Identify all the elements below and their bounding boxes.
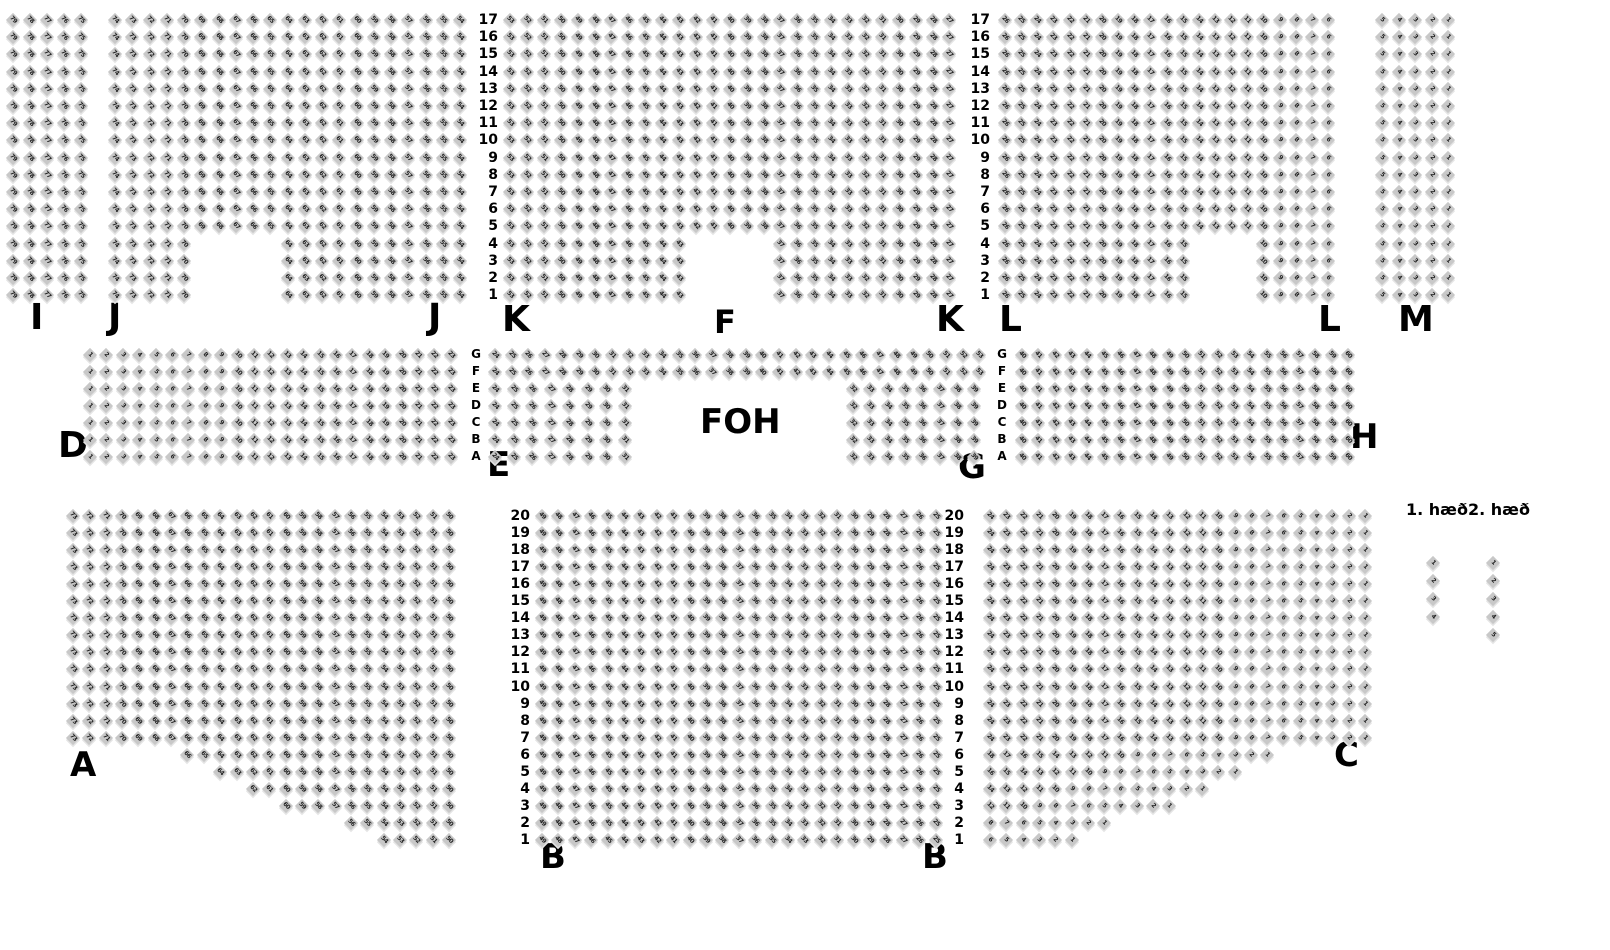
seat[interactable]: 39 [740, 99, 754, 113]
seat[interactable]: 29 [580, 416, 594, 430]
seat[interactable]: 20 [1048, 509, 1062, 523]
seat[interactable]: 20 [1095, 288, 1109, 302]
seat[interactable]: 37 [932, 433, 946, 447]
seat[interactable]: 16 [1113, 714, 1127, 728]
seat[interactable]: 24 [983, 662, 997, 676]
seat[interactable]: 25 [1014, 47, 1028, 61]
seat[interactable]: 32 [858, 202, 872, 216]
seat[interactable]: 51 [939, 348, 953, 362]
seat[interactable]: 65 [263, 82, 277, 96]
seat[interactable]: 78 [23, 82, 37, 96]
seat[interactable]: 36 [748, 509, 762, 523]
seat[interactable]: 49 [535, 628, 549, 642]
seat[interactable]: 51 [1194, 450, 1208, 464]
seat[interactable]: 42 [650, 611, 664, 625]
seat[interactable]: 2 [1244, 748, 1258, 762]
seat[interactable]: 25 [506, 416, 520, 430]
seat[interactable]: 43 [672, 65, 686, 79]
seat[interactable]: 57 [328, 577, 342, 591]
seat[interactable]: 60 [349, 30, 363, 44]
seat[interactable]: 28 [879, 628, 893, 642]
seat[interactable]: 53 [1227, 416, 1241, 430]
seat[interactable]: 60 [349, 237, 363, 251]
seat[interactable]: 55 [360, 662, 374, 676]
seat[interactable]: 69 [131, 543, 145, 557]
seat[interactable]: 77 [40, 116, 54, 130]
seat[interactable]: 31 [875, 13, 889, 27]
seat[interactable]: 29 [909, 116, 923, 130]
seat[interactable]: 2 [1486, 574, 1500, 588]
seat[interactable]: 41 [666, 662, 680, 676]
seat[interactable]: 22 [1016, 731, 1030, 745]
seat[interactable]: 77 [40, 13, 54, 27]
seat[interactable]: 15 [1130, 543, 1144, 557]
seat[interactable]: 22 [427, 382, 441, 396]
seat[interactable]: 35 [807, 271, 821, 285]
seat[interactable]: 31 [830, 543, 844, 557]
seat[interactable]: 52 [520, 168, 534, 182]
seat[interactable]: 57 [328, 662, 342, 676]
seat[interactable]: 73 [66, 526, 80, 540]
seat[interactable]: 33 [841, 168, 855, 182]
seat[interactable]: 57 [401, 237, 415, 251]
seat[interactable]: 39 [740, 202, 754, 216]
seat[interactable]: 25 [1014, 151, 1028, 165]
seat[interactable]: 35 [807, 13, 821, 27]
seat[interactable]: 8 [1289, 168, 1303, 182]
seat[interactable]: 12 [1179, 714, 1193, 728]
seat[interactable]: 26 [912, 526, 926, 540]
seat[interactable]: 2 [1342, 628, 1356, 642]
seat[interactable]: 30 [892, 168, 906, 182]
seat[interactable]: 1 [1195, 782, 1209, 796]
seat[interactable]: 55 [360, 628, 374, 642]
seat[interactable]: 49 [1162, 399, 1176, 413]
seat[interactable]: 51 [537, 13, 551, 27]
seat[interactable]: 75 [74, 30, 88, 44]
seat[interactable]: 69 [131, 560, 145, 574]
seat[interactable]: 17 [345, 365, 359, 379]
seat[interactable]: 19 [378, 365, 392, 379]
seat[interactable]: 55 [1259, 399, 1273, 413]
seat[interactable]: 1 [1441, 47, 1455, 61]
seat[interactable]: 36 [748, 833, 762, 847]
seat[interactable]: 30 [892, 13, 906, 27]
seat[interactable]: 32 [814, 714, 828, 728]
seat[interactable]: 37 [773, 185, 787, 199]
seat[interactable]: 58 [311, 799, 325, 813]
seat[interactable]: 64 [213, 696, 227, 710]
seat[interactable]: 16 [1113, 679, 1127, 693]
seat[interactable]: 5 [1375, 151, 1389, 165]
seat[interactable]: 39 [740, 185, 754, 199]
seat[interactable]: 41 [666, 679, 680, 693]
seat[interactable]: 53 [503, 82, 517, 96]
seat[interactable]: 28 [562, 416, 576, 430]
seat[interactable]: 47 [568, 816, 582, 830]
seat[interactable]: 48 [1145, 399, 1159, 413]
seat[interactable]: 16 [1159, 65, 1173, 79]
seat[interactable]: 6 [165, 433, 179, 447]
seat[interactable]: 35 [807, 99, 821, 113]
seat[interactable]: 20 [395, 433, 409, 447]
seat[interactable]: 46 [621, 288, 635, 302]
seat[interactable]: 44 [617, 816, 631, 830]
seat[interactable]: 7 [1162, 748, 1176, 762]
seat[interactable]: 58 [311, 748, 325, 762]
seat[interactable]: 2 [1048, 833, 1062, 847]
seat[interactable]: 15 [1130, 628, 1144, 642]
seat[interactable]: 32 [814, 662, 828, 676]
seat[interactable]: 73 [125, 288, 139, 302]
seat[interactable]: 37 [732, 577, 746, 591]
seat[interactable]: 4 [1391, 271, 1405, 285]
seat[interactable]: 53 [393, 526, 407, 540]
seat[interactable]: 6 [165, 382, 179, 396]
seat[interactable]: 35 [765, 731, 779, 745]
seat[interactable]: 37 [773, 168, 787, 182]
seat[interactable]: 17 [1143, 116, 1157, 130]
seat[interactable]: 54 [377, 560, 391, 574]
seat[interactable]: 41 [666, 645, 680, 659]
seat[interactable]: 46 [621, 185, 635, 199]
seat[interactable]: 64 [280, 237, 294, 251]
seat[interactable]: 66 [180, 543, 194, 557]
seat[interactable]: 71 [160, 271, 174, 285]
seat[interactable]: 28 [925, 30, 939, 44]
seat[interactable]: 57 [401, 65, 415, 79]
seat[interactable]: 18 [1127, 168, 1141, 182]
seat[interactable]: 55 [360, 543, 374, 557]
seat[interactable]: 79 [6, 65, 20, 79]
seat[interactable]: 19 [1064, 645, 1078, 659]
seat[interactable]: 40 [683, 816, 697, 830]
seat[interactable]: 60 [349, 47, 363, 61]
seat[interactable]: 15 [1130, 714, 1144, 728]
seat[interactable]: 27 [942, 30, 956, 44]
seat[interactable]: 22 [1063, 82, 1077, 96]
seat[interactable]: 61 [332, 168, 346, 182]
seat[interactable]: 5 [1375, 99, 1389, 113]
seat[interactable]: 52 [409, 782, 423, 796]
seat[interactable]: 55 [360, 731, 374, 745]
seat[interactable]: 34 [781, 799, 795, 813]
seat[interactable]: 4 [1309, 731, 1323, 745]
seat[interactable]: 49 [571, 13, 585, 27]
seat[interactable]: 15 [1176, 65, 1190, 79]
seat[interactable]: 52 [520, 185, 534, 199]
seat[interactable]: 36 [688, 365, 702, 379]
seat[interactable]: 31 [875, 99, 889, 113]
seat[interactable]: 59 [295, 696, 309, 710]
seat[interactable]: 9 [1272, 65, 1286, 79]
seat[interactable]: 49 [535, 765, 549, 779]
seat[interactable]: 11 [247, 399, 261, 413]
seat[interactable]: 13 [1162, 594, 1176, 608]
seat[interactable]: 35 [807, 237, 821, 251]
seat[interactable]: 6 [1321, 13, 1335, 27]
seat[interactable]: 9 [1272, 82, 1286, 96]
seat[interactable]: 29 [909, 254, 923, 268]
seat[interactable]: 21 [1032, 577, 1046, 591]
seat[interactable]: 57 [328, 748, 342, 762]
seat[interactable]: 53 [503, 99, 517, 113]
seat[interactable]: 20 [395, 399, 409, 413]
seat[interactable]: 37 [773, 116, 787, 130]
seat[interactable]: 21 [1079, 185, 1093, 199]
seat[interactable]: 13 [1208, 65, 1222, 79]
seat[interactable]: 43 [672, 47, 686, 61]
seat[interactable]: 51 [426, 509, 440, 523]
seat[interactable]: 42 [650, 748, 664, 762]
seat[interactable]: 72 [82, 696, 96, 710]
seat[interactable]: 40 [1015, 382, 1029, 396]
seat[interactable]: 66 [246, 168, 260, 182]
seat[interactable]: 6 [1276, 543, 1290, 557]
seat[interactable]: 18 [1127, 254, 1141, 268]
seat[interactable]: 63 [229, 526, 243, 540]
seat[interactable]: 27 [942, 65, 956, 79]
seat[interactable]: 54 [1243, 382, 1257, 396]
seat[interactable]: 57 [401, 151, 415, 165]
seat[interactable]: 10 [1256, 185, 1270, 199]
seat[interactable]: 59 [295, 543, 309, 557]
seat[interactable]: 49 [1162, 416, 1176, 430]
seat[interactable]: 2 [1424, 30, 1438, 44]
seat[interactable]: 77 [40, 185, 54, 199]
seat[interactable]: 56 [344, 662, 358, 676]
seat[interactable]: 61 [262, 782, 276, 796]
seat[interactable]: 73 [125, 116, 139, 130]
seat[interactable]: 64 [213, 714, 227, 728]
seat[interactable]: 32 [814, 748, 828, 762]
seat[interactable]: 74 [108, 82, 122, 96]
seat[interactable]: 33 [841, 219, 855, 233]
seat[interactable]: 5 [1375, 30, 1389, 44]
seat[interactable]: 72 [82, 679, 96, 693]
seat[interactable]: 73 [125, 185, 139, 199]
seat[interactable]: 51 [537, 288, 551, 302]
seat[interactable]: 10 [231, 365, 245, 379]
seat[interactable]: 21 [1079, 219, 1093, 233]
seat[interactable]: 63 [298, 82, 312, 96]
seat[interactable]: 45 [839, 365, 853, 379]
seat[interactable]: 44 [617, 731, 631, 745]
seat[interactable]: 3 [116, 365, 130, 379]
seat[interactable]: 38 [715, 594, 729, 608]
seat[interactable]: 49 [905, 365, 919, 379]
seat[interactable]: 3 [1486, 592, 1500, 606]
seat[interactable]: 60 [278, 594, 292, 608]
seat[interactable]: 35 [765, 645, 779, 659]
seat[interactable]: 58 [1308, 416, 1322, 430]
seat[interactable]: 5 [1097, 799, 1111, 813]
seat[interactable]: 34 [781, 577, 795, 591]
seat[interactable]: 57 [401, 116, 415, 130]
seat[interactable]: 29 [863, 816, 877, 830]
seat[interactable]: 16 [1113, 611, 1127, 625]
seat[interactable]: 14 [296, 399, 310, 413]
seat[interactable]: 24 [1030, 185, 1044, 199]
seat[interactable]: 30 [892, 151, 906, 165]
seat[interactable]: 11 [1195, 594, 1209, 608]
seat[interactable]: 26 [912, 748, 926, 762]
seat[interactable]: 30 [847, 543, 861, 557]
seat[interactable]: 2 [99, 450, 113, 464]
seat[interactable]: 27 [543, 433, 557, 447]
seat[interactable]: 28 [925, 219, 939, 233]
seat[interactable]: 3 [1325, 645, 1339, 659]
seat[interactable]: 19 [378, 348, 392, 362]
seat[interactable]: 26 [998, 116, 1012, 130]
seat[interactable]: 61 [332, 13, 346, 27]
seat[interactable]: 5 [1293, 696, 1307, 710]
seat[interactable]: 52 [520, 219, 534, 233]
seat[interactable]: 65 [263, 202, 277, 216]
seat[interactable]: 37 [773, 219, 787, 233]
seat[interactable]: 59 [1325, 433, 1339, 447]
seat[interactable]: 60 [278, 526, 292, 540]
seat[interactable]: 27 [896, 748, 910, 762]
seat[interactable]: 26 [912, 628, 926, 642]
seat[interactable]: 6 [1016, 816, 1030, 830]
seat[interactable]: 7 [1305, 99, 1319, 113]
seat[interactable]: 36 [790, 288, 804, 302]
seat[interactable]: 48 [587, 168, 601, 182]
seat[interactable]: 52 [409, 696, 423, 710]
seat[interactable]: 9 [1227, 577, 1241, 591]
seat[interactable]: 45 [601, 662, 615, 676]
seat[interactable]: 55 [436, 151, 450, 165]
seat[interactable]: 61 [262, 731, 276, 745]
seat[interactable]: 42 [650, 731, 664, 745]
seat[interactable]: 57 [401, 168, 415, 182]
seat[interactable]: 64 [213, 765, 227, 779]
seat[interactable]: 34 [824, 133, 838, 147]
seat[interactable]: 29 [863, 645, 877, 659]
seat[interactable]: 71 [160, 116, 174, 130]
seat[interactable]: 36 [748, 577, 762, 591]
seat[interactable]: 37 [732, 560, 746, 574]
seat[interactable]: 21 [1032, 560, 1046, 574]
seat[interactable]: 37 [732, 816, 746, 830]
seat[interactable]: 63 [298, 237, 312, 251]
seat[interactable]: 8 [1244, 577, 1258, 591]
seat[interactable]: 32 [858, 47, 872, 61]
seat[interactable]: 5 [1293, 594, 1307, 608]
seat[interactable]: 7 [1260, 645, 1274, 659]
seat[interactable]: 14 [1192, 47, 1206, 61]
seat[interactable]: 60 [278, 799, 292, 813]
seat[interactable]: 1 [1441, 65, 1455, 79]
seat[interactable]: 7 [1305, 185, 1319, 199]
seat[interactable]: 52 [520, 99, 534, 113]
seat[interactable]: 49 [535, 696, 549, 710]
seat[interactable]: 12 [1179, 577, 1193, 591]
seat[interactable]: 12 [1179, 611, 1193, 625]
seat[interactable]: 32 [858, 151, 872, 165]
seat[interactable]: 49 [571, 30, 585, 44]
seat[interactable]: 70 [115, 628, 129, 642]
seat[interactable]: 42 [1048, 365, 1062, 379]
seat[interactable]: 2 [1081, 816, 1095, 830]
seat[interactable]: 74 [108, 185, 122, 199]
seat[interactable]: 15 [1176, 151, 1190, 165]
seat[interactable]: 48 [587, 47, 601, 61]
seat[interactable]: 9 [1064, 782, 1078, 796]
seat[interactable]: 44 [617, 748, 631, 762]
seat[interactable]: 14 [1192, 116, 1206, 130]
seat[interactable]: 34 [824, 30, 838, 44]
seat[interactable]: 13 [1208, 151, 1222, 165]
seat[interactable]: 49 [1162, 433, 1176, 447]
seat[interactable]: 58 [384, 237, 398, 251]
seat[interactable]: 66 [180, 731, 194, 745]
seat[interactable]: 27 [942, 99, 956, 113]
seat[interactable]: 69 [131, 714, 145, 728]
seat[interactable]: 19 [1111, 133, 1125, 147]
seat[interactable]: 29 [909, 133, 923, 147]
seat[interactable]: 61 [262, 628, 276, 642]
seat[interactable]: 68 [148, 594, 162, 608]
seat[interactable]: 61 [262, 662, 276, 676]
seat[interactable]: 64 [280, 288, 294, 302]
seat[interactable]: 76 [57, 219, 71, 233]
seat[interactable]: 53 [393, 816, 407, 830]
seat[interactable]: 12 [1224, 65, 1238, 79]
seat[interactable]: 33 [797, 679, 811, 693]
seat[interactable]: 37 [732, 662, 746, 676]
seat[interactable]: 16 [983, 765, 997, 779]
seat[interactable]: 35 [898, 433, 912, 447]
seat[interactable]: 74 [108, 116, 122, 130]
seat[interactable]: 30 [599, 450, 613, 464]
seat[interactable]: 36 [748, 696, 762, 710]
seat[interactable]: 43 [672, 82, 686, 96]
seat[interactable]: 67 [229, 185, 243, 199]
seat[interactable]: 28 [879, 731, 893, 745]
seat[interactable]: 11 [1240, 82, 1254, 96]
seat[interactable]: 18 [983, 748, 997, 762]
seat[interactable]: 54 [453, 13, 467, 27]
seat[interactable]: 32 [814, 782, 828, 796]
seat[interactable]: 53 [393, 833, 407, 847]
seat[interactable]: 39 [699, 679, 713, 693]
seat[interactable]: 68 [211, 133, 225, 147]
seat[interactable]: 4 [1309, 577, 1323, 591]
seat[interactable]: 9 [1097, 765, 1111, 779]
seat[interactable]: 18 [362, 399, 376, 413]
seat[interactable]: 13 [1162, 628, 1176, 642]
seat[interactable]: 48 [551, 799, 565, 813]
seat[interactable]: 71 [99, 731, 113, 745]
seat[interactable]: 17 [1143, 202, 1157, 216]
seat[interactable]: 27 [942, 185, 956, 199]
seat[interactable]: 31 [875, 254, 889, 268]
seat[interactable]: 3 [1408, 185, 1422, 199]
seat[interactable]: 6 [1321, 133, 1335, 147]
seat[interactable]: 44 [655, 30, 669, 44]
seat[interactable]: 72 [142, 202, 156, 216]
seat[interactable]: 29 [863, 628, 877, 642]
seat[interactable]: 63 [298, 288, 312, 302]
seat[interactable]: 30 [847, 714, 861, 728]
seat[interactable]: 50 [554, 202, 568, 216]
seat[interactable]: 66 [246, 30, 260, 44]
seat[interactable]: 20 [1048, 560, 1062, 574]
seat[interactable]: 28 [879, 714, 893, 728]
seat[interactable]: 46 [584, 679, 598, 693]
